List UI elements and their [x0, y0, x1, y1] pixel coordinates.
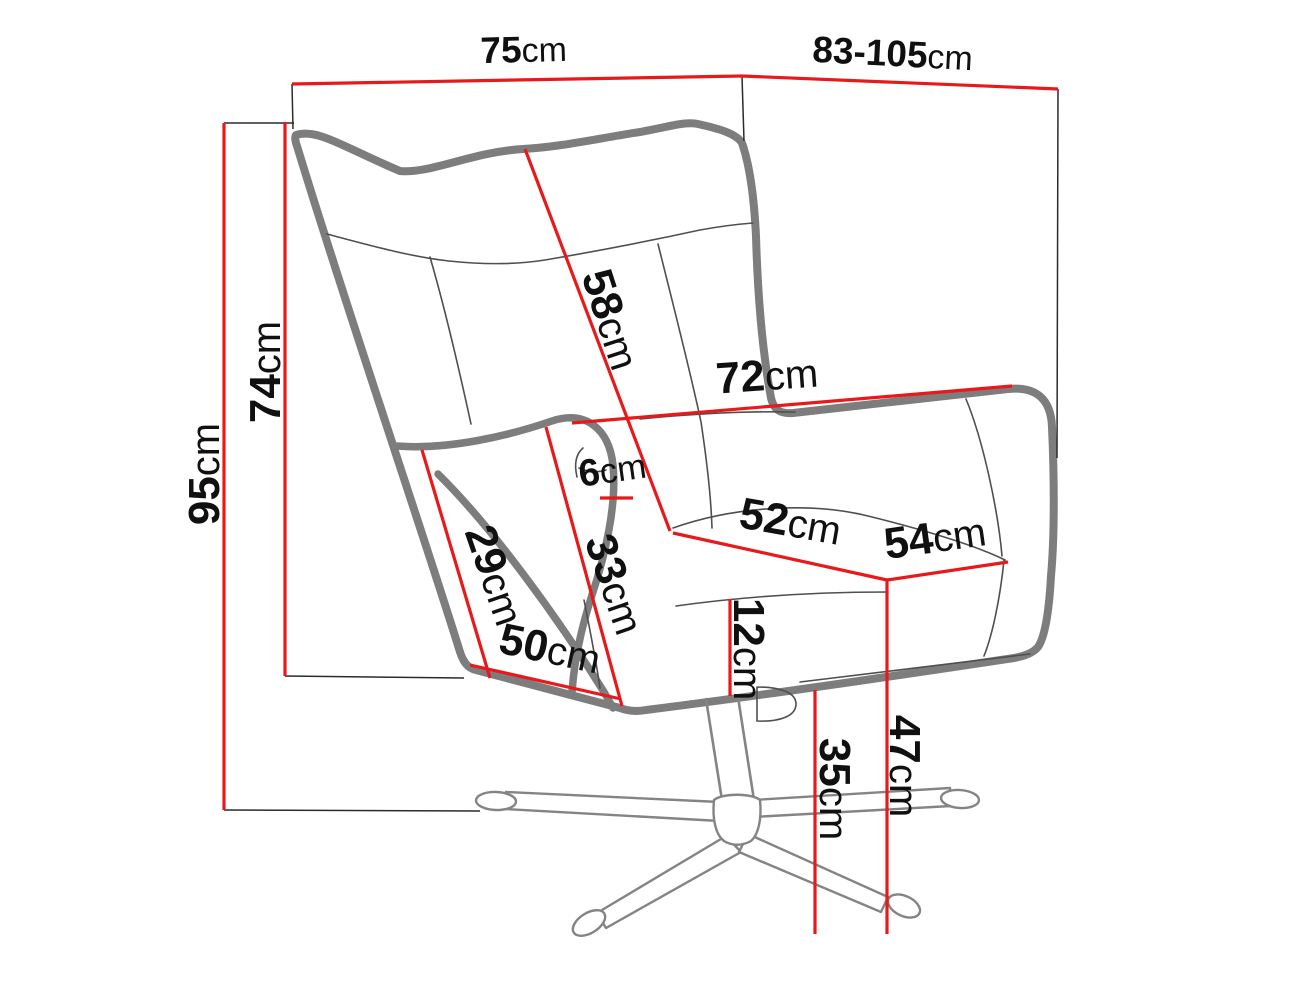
base-hub	[713, 795, 760, 845]
dimension-seat-thickness: 12cm	[724, 598, 773, 700]
ref-drop-apex	[742, 76, 744, 141]
dimension-inner-width-label: 72cm	[714, 348, 819, 404]
diagram-canvas: 75cm 83-105cm 95cm 74cm 58cm 72cm 29cm 3…	[0, 0, 1310, 982]
dimension-overall-width-line	[292, 76, 742, 84]
dimension-backrest-height: 74cm	[241, 122, 290, 676]
dimension-overall-depth-label: 83-105cm	[811, 29, 973, 78]
dimension-overall-depth: 83-105cm	[742, 29, 1058, 89]
ref-floor-line	[224, 810, 480, 811]
dimension-overall-depth-line	[742, 76, 1058, 89]
dimension-overall-width: 75cm	[292, 28, 742, 84]
dimension-underseat-clearance-label: 35cm	[810, 738, 859, 840]
dimension-overall-height: 95cm	[180, 123, 229, 810]
dimension-seat-thickness-label: 12cm	[724, 598, 773, 700]
base-foot-front-right	[884, 890, 923, 922]
chair-outline	[295, 123, 1054, 711]
dimension-overall-width-label: 75cm	[480, 28, 568, 71]
dimension-seat-height-label: 47cm	[880, 715, 929, 817]
base-foot-back-left	[476, 791, 517, 810]
ref-tick-backrest-bottom	[285, 676, 464, 678]
ref-drop-right	[1057, 89, 1058, 458]
dimension-backrest-height-label: 74cm	[241, 321, 290, 423]
base-column	[706, 697, 754, 800]
chair-dimension-diagram: 75cm 83-105cm 95cm 74cm 58cm 72cm 29cm 3…	[0, 0, 1310, 982]
dimension-overall-height-label: 95cm	[180, 423, 229, 525]
base-leg-back-left	[505, 792, 720, 821]
base-leg-front-left	[597, 836, 741, 928]
